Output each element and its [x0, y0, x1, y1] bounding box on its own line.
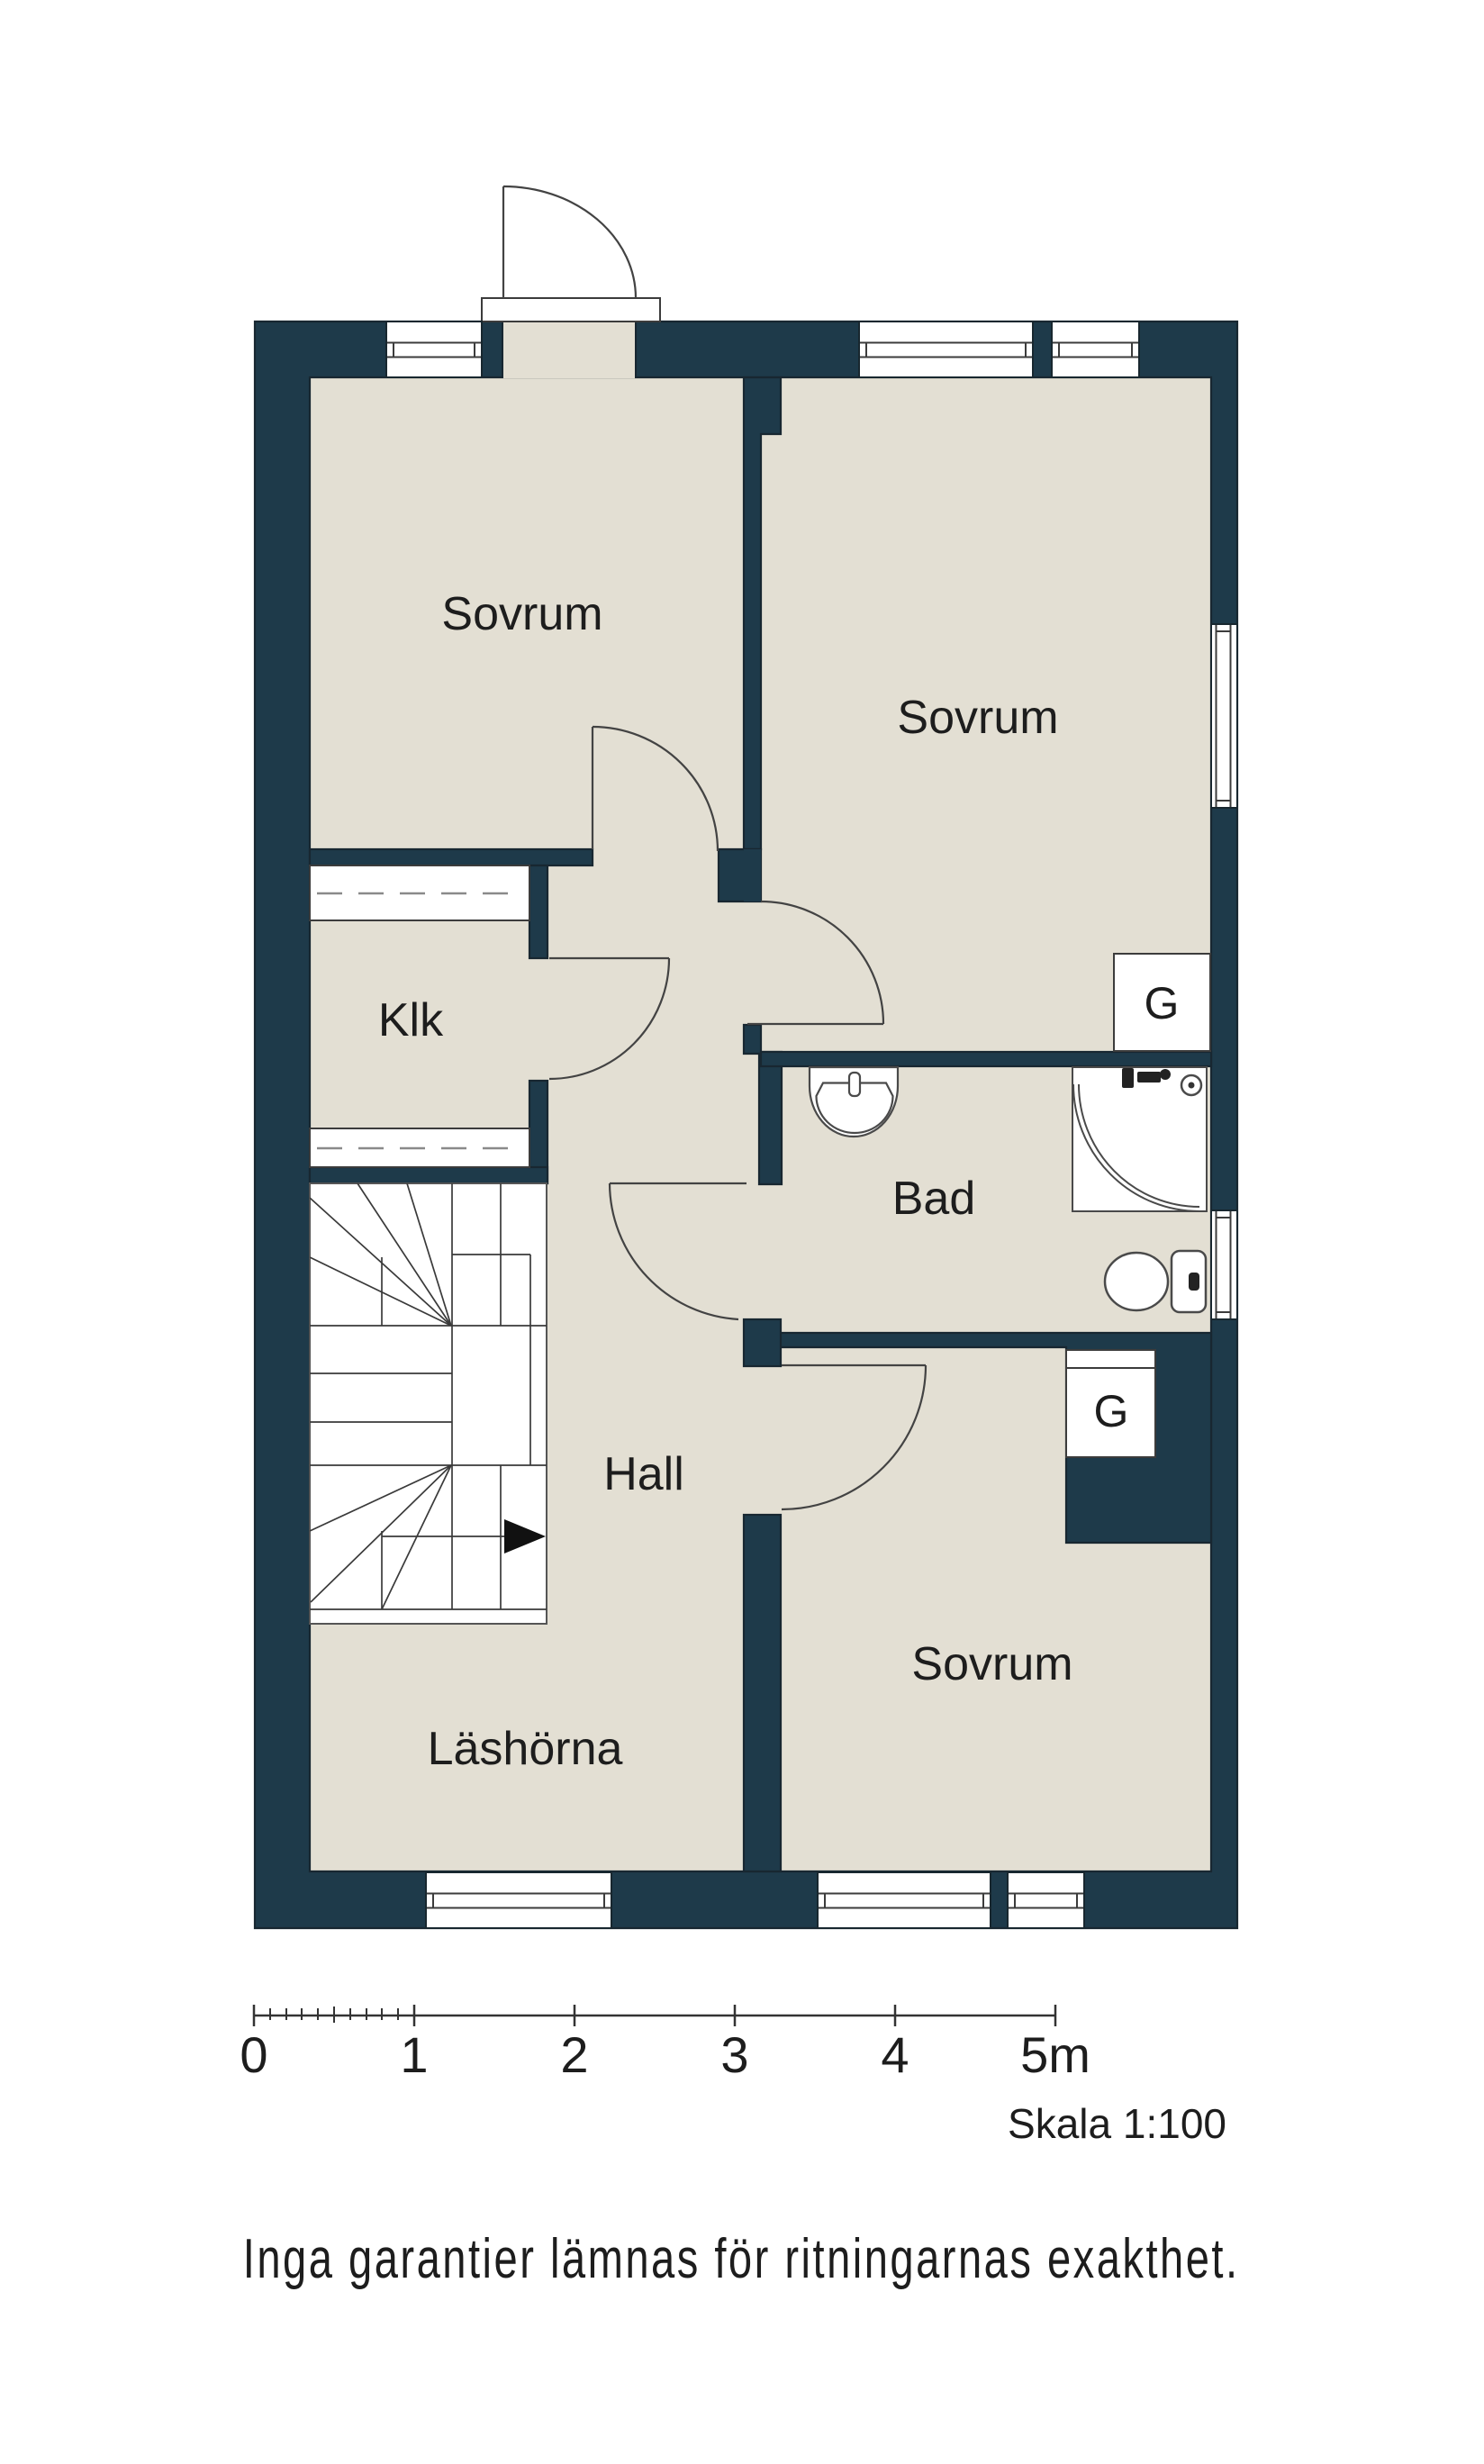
svg-text:2: 2	[560, 2026, 588, 2083]
svg-text:Bad: Bad	[892, 1173, 976, 1225]
svg-text:Läshörna: Läshörna	[428, 1723, 623, 1775]
svg-text:5m: 5m	[1020, 2026, 1090, 2083]
svg-text:Sovrum: Sovrum	[897, 692, 1058, 744]
svg-text:1: 1	[400, 2026, 428, 2083]
svg-text:Sovrum: Sovrum	[441, 588, 602, 640]
svg-text:Inga garantier lämnas för ritn: Inga garantier lämnas för ritningarnas e…	[243, 2227, 1237, 2290]
svg-text:G: G	[1145, 978, 1180, 1028]
svg-text:Klk: Klk	[378, 994, 444, 1046]
svg-text:Sovrum: Sovrum	[911, 1638, 1072, 1690]
svg-text:G: G	[1094, 1386, 1129, 1436]
svg-text:0: 0	[240, 2026, 267, 2083]
svg-text:Skala 1:100: Skala 1:100	[1008, 2100, 1226, 2147]
svg-text:Hall: Hall	[603, 1448, 684, 1500]
svg-text:3: 3	[720, 2026, 748, 2083]
svg-text:4: 4	[881, 2026, 909, 2083]
